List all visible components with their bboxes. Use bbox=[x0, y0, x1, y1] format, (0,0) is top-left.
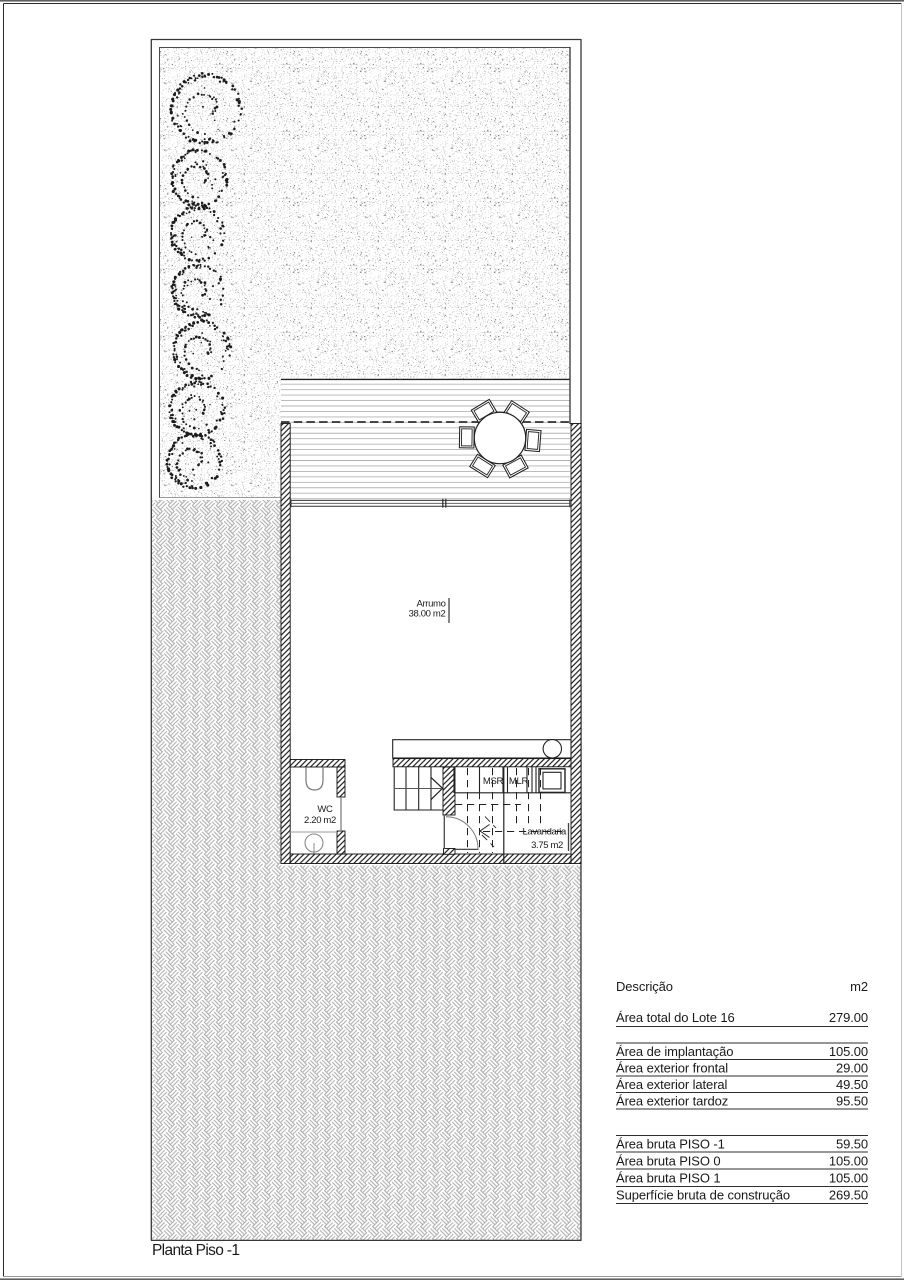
svg-text:105.00: 105.00 bbox=[829, 1154, 868, 1169]
svg-text:MSR: MSR bbox=[483, 776, 504, 787]
svg-text:Área exterior frontal: Área exterior frontal bbox=[616, 1061, 728, 1076]
svg-text:Área total do Lote 16: Área total do Lote 16 bbox=[616, 1010, 735, 1025]
svg-text:Área bruta PISO 1: Área bruta PISO 1 bbox=[616, 1171, 721, 1186]
svg-text:29.00: 29.00 bbox=[836, 1061, 868, 1076]
svg-text:Planta Piso -1: Planta Piso -1 bbox=[152, 1242, 240, 1259]
svg-text:m2: m2 bbox=[850, 979, 868, 994]
svg-text:Descrição: Descrição bbox=[616, 979, 673, 994]
svg-text:Superfície bruta de construção: Superfície bruta de construção bbox=[616, 1188, 790, 1203]
svg-text:3.75 m2: 3.75 m2 bbox=[531, 840, 563, 851]
svg-text:2.20 m2: 2.20 m2 bbox=[304, 815, 336, 826]
svg-text:105.00: 105.00 bbox=[829, 1044, 868, 1059]
svg-text:Área bruta PISO 0: Área bruta PISO 0 bbox=[616, 1154, 721, 1169]
svg-text:Área bruta PISO -1: Área bruta PISO -1 bbox=[616, 1137, 725, 1152]
svg-text:95.50: 95.50 bbox=[836, 1094, 868, 1109]
svg-text:MLR: MLR bbox=[509, 776, 529, 787]
svg-text:WC: WC bbox=[317, 804, 333, 815]
svg-text:38.00 m2: 38.00 m2 bbox=[409, 609, 446, 620]
svg-text:Área exterior lateral: Área exterior lateral bbox=[616, 1077, 728, 1092]
svg-text:279.00: 279.00 bbox=[829, 1010, 868, 1025]
svg-text:Área de implantação: Área de implantação bbox=[616, 1044, 733, 1059]
svg-text:59.50: 59.50 bbox=[836, 1137, 868, 1152]
svg-text:Lavandaria: Lavandaria bbox=[522, 827, 567, 838]
svg-text:105.00: 105.00 bbox=[829, 1171, 868, 1186]
svg-text:Área exterior tardoz: Área exterior tardoz bbox=[616, 1094, 728, 1109]
svg-text:269.50: 269.50 bbox=[829, 1188, 868, 1203]
svg-text:49.50: 49.50 bbox=[836, 1077, 868, 1092]
